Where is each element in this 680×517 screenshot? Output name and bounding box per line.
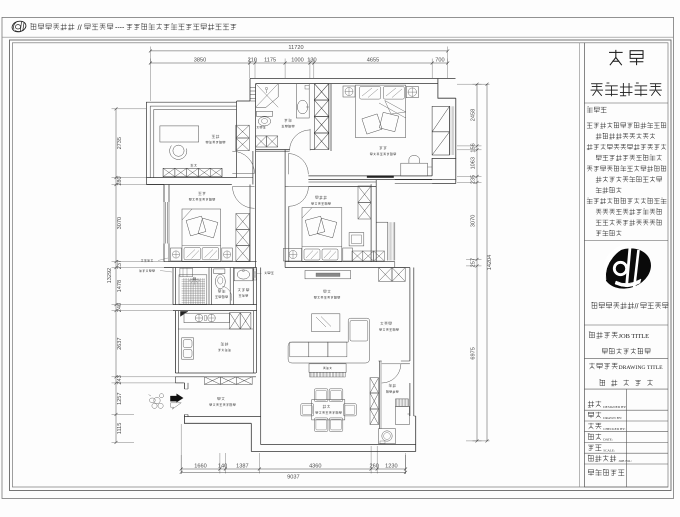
svg-text:JOB NO.:: JOB NO.: [618,459,632,463]
svg-text:1175: 1175 [264,57,276,63]
svg-text:----: ---- [115,24,125,31]
svg-text:CHECKED BY:: CHECKED BY: [603,427,625,431]
svg-text:3070: 3070 [117,217,123,229]
svg-text:6975: 6975 [471,347,477,359]
svg-text:1230: 1230 [385,463,397,469]
svg-text:2458: 2458 [471,109,477,121]
svg-text:260: 260 [370,463,379,469]
svg-text:SCALE:: SCALE: [603,448,615,452]
svg-text:3850: 3850 [194,57,206,63]
svg-text:240: 240 [117,303,123,312]
svg-text:13292: 13292 [107,268,113,284]
svg-text:1115: 1115 [117,423,123,435]
svg-text:257: 257 [471,258,477,267]
svg-text:DATE:: DATE: [603,438,613,442]
svg-text:14204: 14204 [487,255,493,271]
svg-text:237: 237 [117,260,123,269]
svg-text:2735: 2735 [117,137,123,149]
svg-text:1063: 1063 [471,157,477,169]
svg-text:11720: 11720 [288,45,303,51]
svg-text://: // [635,304,639,311]
svg-text:DRAWN BY:: DRAWN BY: [603,416,622,420]
svg-text:1478: 1478 [117,280,123,292]
svg-text:280: 280 [117,176,123,185]
svg-text:1387: 1387 [236,463,248,469]
svg-text:1000: 1000 [291,57,303,63]
svg-text:4655: 4655 [367,57,379,63]
svg-text:1660: 1660 [194,463,206,469]
svg-text:235: 235 [471,175,477,184]
svg-text:156: 156 [471,143,477,152]
svg-text:3070: 3070 [471,215,477,227]
svg-text:JOB TITLE: JOB TITLE [619,333,650,340]
svg-text:243: 243 [117,375,123,384]
svg-text:140: 140 [218,463,227,469]
svg-text:700: 700 [435,57,444,63]
svg-text:DRAWING TITLE: DRAWING TITLE [619,365,664,371]
svg-text:210: 210 [248,57,257,63]
svg-text:2637: 2637 [117,337,123,349]
svg-text:9037: 9037 [287,475,299,481]
svg-text:DESIGNED BY:: DESIGNED BY: [603,405,626,409]
svg-text:4360: 4360 [309,463,321,469]
svg-text:1257: 1257 [117,392,123,404]
svg-text:130: 130 [307,57,316,63]
